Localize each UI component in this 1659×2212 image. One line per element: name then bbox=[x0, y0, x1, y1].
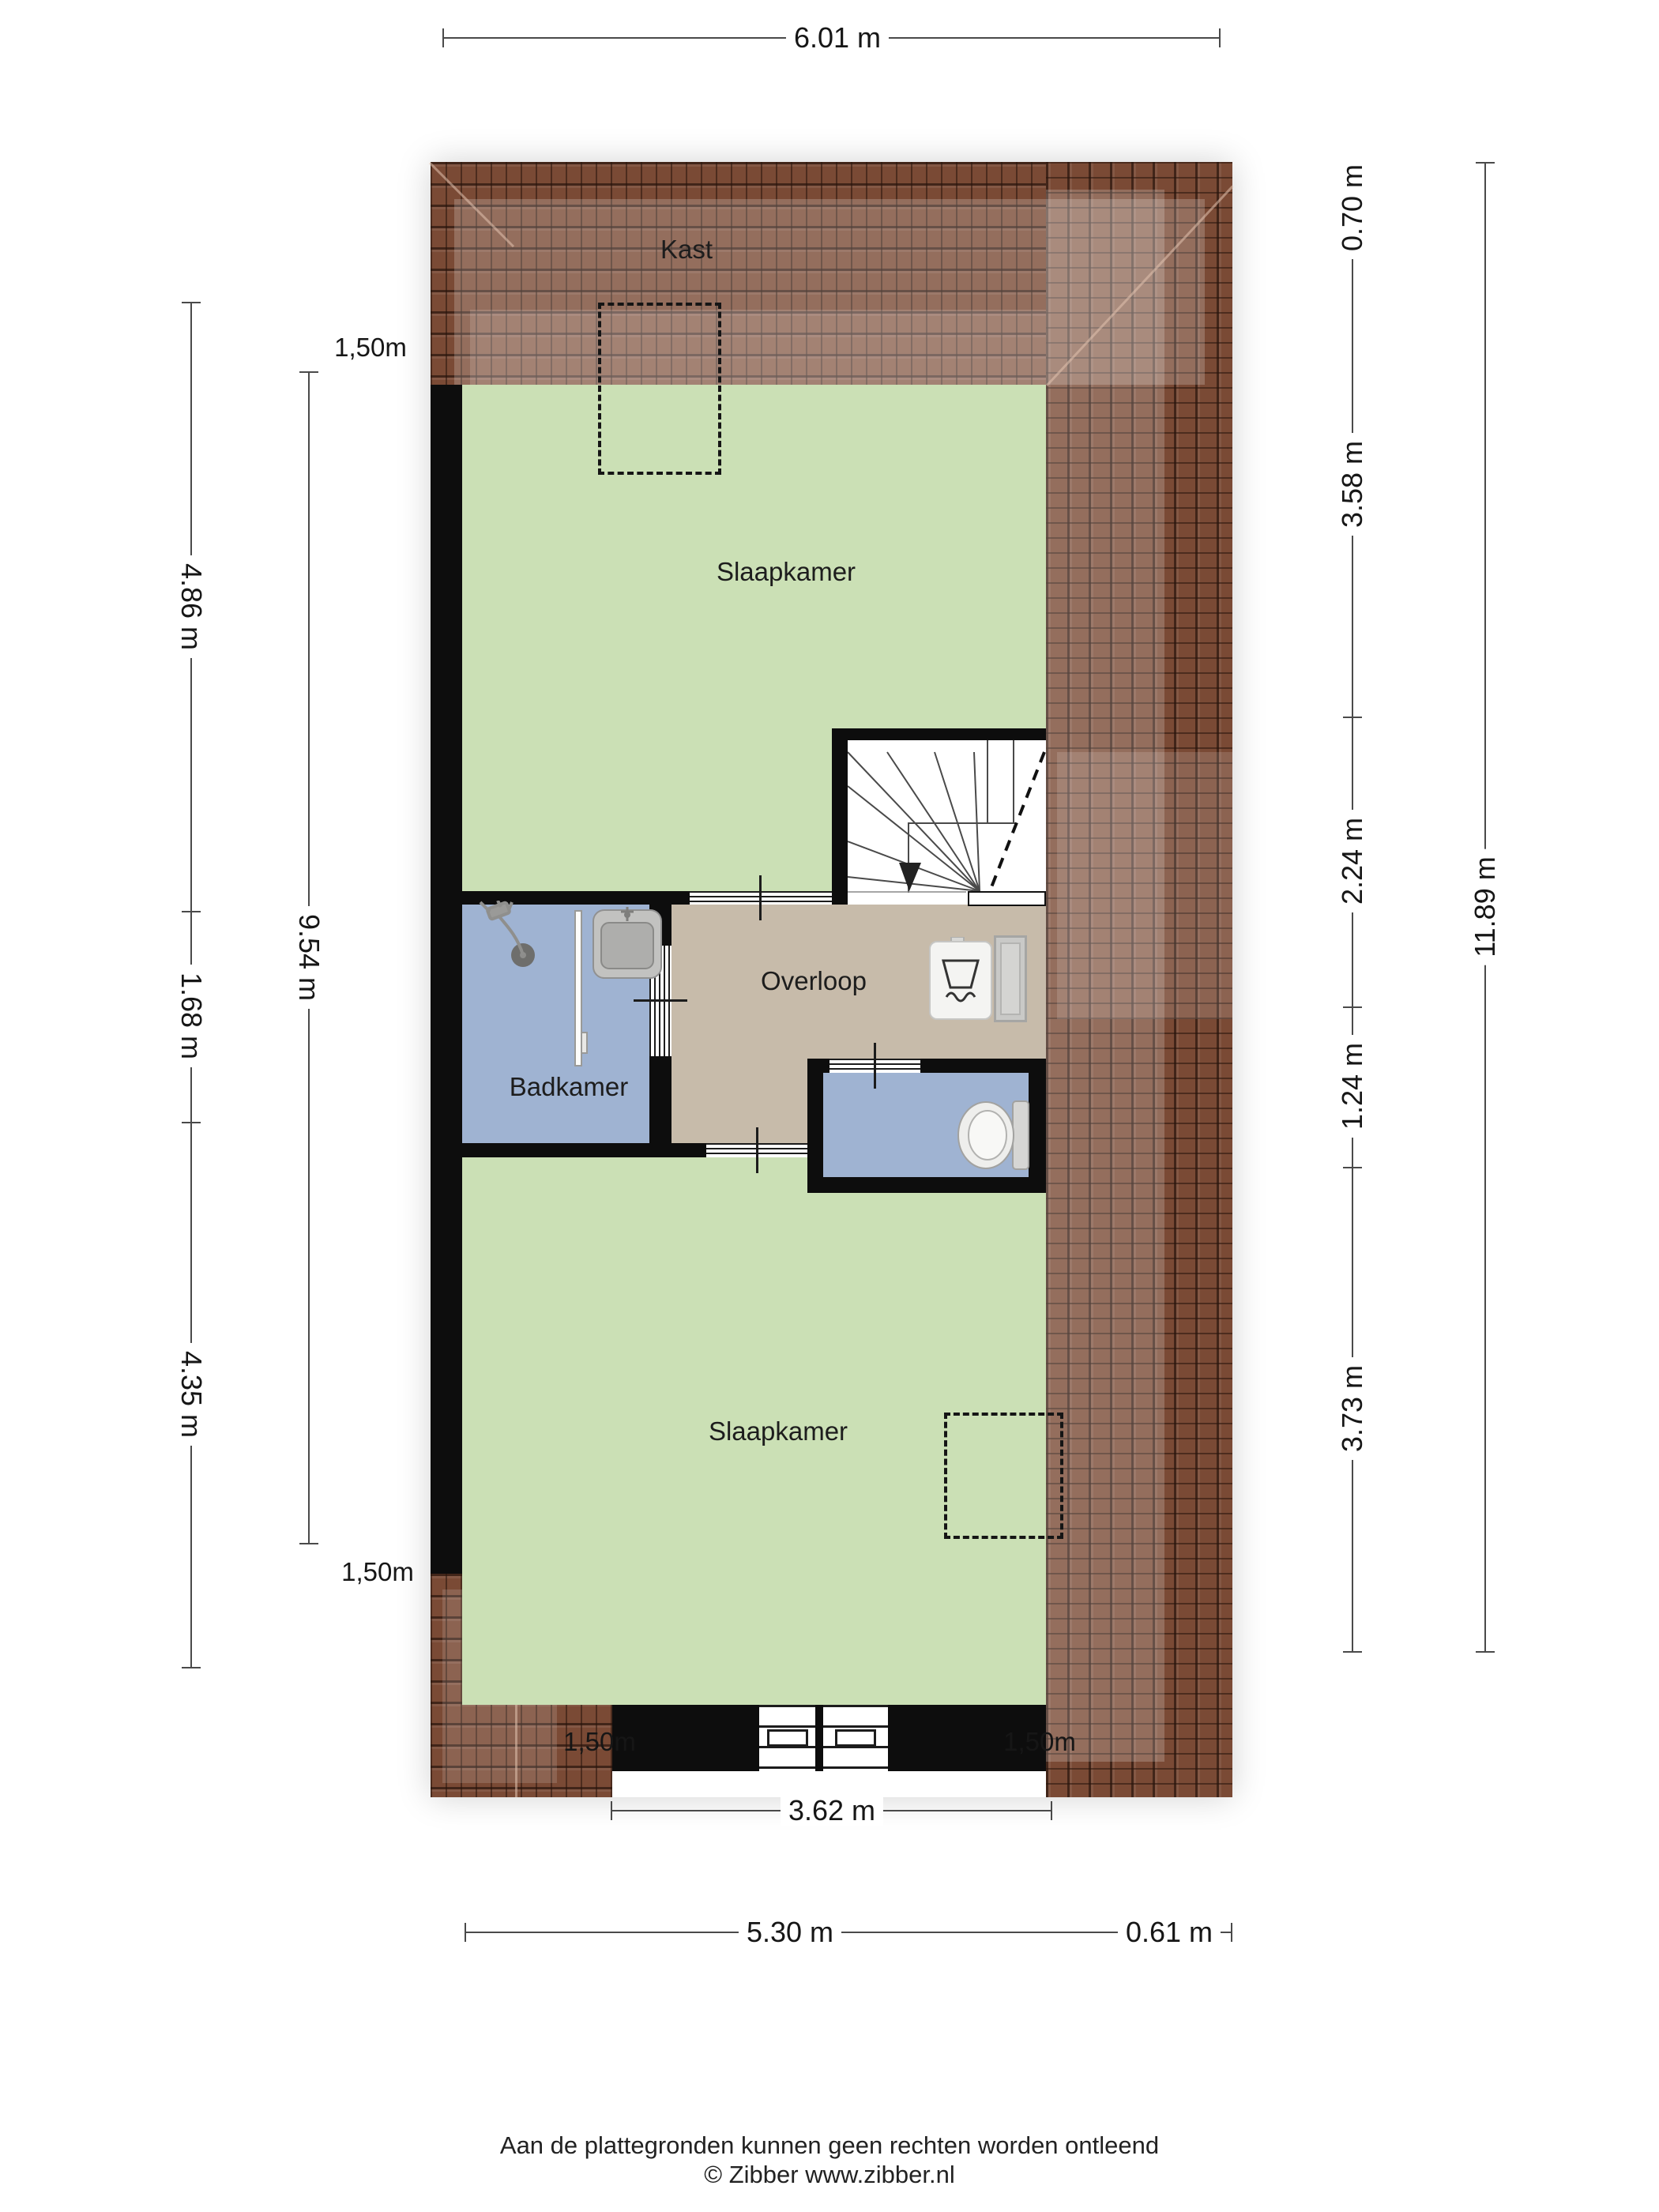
room-label-bathroom: Badkamer bbox=[510, 1072, 628, 1102]
dim-tick bbox=[442, 28, 444, 47]
wall-window-mullion bbox=[815, 1705, 823, 1771]
room-label-landing: Overloop bbox=[761, 966, 867, 996]
door-centerline bbox=[634, 999, 687, 1002]
dim-tick bbox=[182, 911, 201, 912]
dim-tick bbox=[1343, 1006, 1362, 1008]
dim-label-headroom-left-bottom: 1,50m bbox=[333, 1558, 422, 1586]
dim-label-headroom-left-top: 1,50m bbox=[326, 333, 415, 362]
room-label-bedroom-bottom: Slaapkamer bbox=[709, 1416, 848, 1446]
dim-tick bbox=[1476, 1651, 1495, 1653]
wall-toilet-bottom bbox=[807, 1177, 1046, 1193]
stair-landing-threshold bbox=[968, 891, 1046, 906]
sink-icon bbox=[592, 905, 664, 980]
dim-tick bbox=[1476, 162, 1495, 164]
dim-label-left-2: 4.35 m bbox=[175, 1343, 207, 1446]
dim-label-right-total: 11.89 m bbox=[1469, 848, 1501, 965]
dim-label-headroom-bottom-left: 1,50m bbox=[555, 1728, 644, 1756]
dim-tick bbox=[1051, 1801, 1052, 1820]
roof-overlay bbox=[470, 310, 1046, 385]
toilet-icon bbox=[953, 1100, 1032, 1174]
footer-disclaimer: Aan de plattegronden kunnen geen rechten… bbox=[500, 2131, 1159, 2160]
dim-tick bbox=[611, 1801, 612, 1820]
dim-label-headroom-bottom-right: 1,50m bbox=[995, 1728, 1084, 1756]
dim-label-right-3: 1.24 m bbox=[1337, 1035, 1368, 1138]
dim-label-left-1: 1.68 m bbox=[175, 965, 207, 1067]
stairwell bbox=[848, 740, 1046, 893]
room-label-bedroom-top: Slaapkamer bbox=[717, 557, 856, 587]
radiator-knob bbox=[581, 1032, 588, 1054]
dim-label-right-0: 0.70 m bbox=[1337, 156, 1368, 259]
dim-label-right-4: 3.73 m bbox=[1337, 1357, 1368, 1460]
wall-toilet-left bbox=[807, 1059, 823, 1193]
floorplan-canvas: Kast Slaapkamer Overloop Badkamer Slaapk… bbox=[0, 0, 1659, 2212]
wall-toilet-top bbox=[920, 1059, 1046, 1073]
dim-tick bbox=[1231, 1923, 1232, 1942]
footer-credit: © Zibber www.zibber.nl bbox=[704, 2161, 954, 2189]
landing-floor bbox=[671, 905, 807, 1143]
window-pane bbox=[835, 1729, 876, 1747]
dim-label-top-width: 6.01 m bbox=[786, 22, 889, 54]
door-centerline bbox=[756, 1127, 758, 1173]
wall-bathroom-right-lower bbox=[649, 1056, 671, 1157]
wall-stairwell-top bbox=[832, 728, 1046, 740]
dim-tick bbox=[299, 1543, 318, 1544]
dim-tick bbox=[182, 1667, 201, 1668]
window-pane bbox=[767, 1729, 808, 1747]
dim-tick bbox=[1343, 717, 1362, 718]
dim-tick bbox=[1343, 1167, 1362, 1168]
washing-machine-icon bbox=[929, 937, 992, 1021]
door-centerline bbox=[759, 875, 762, 920]
wall-toilet-top-stub bbox=[823, 1059, 829, 1073]
dim-tick bbox=[465, 1923, 466, 1942]
dim-label-right-1: 3.58 m bbox=[1337, 433, 1368, 536]
boiler-cabinet bbox=[994, 935, 1027, 1022]
dim-label-bottom-inner-width: 3.62 m bbox=[781, 1795, 883, 1826]
dim-label-bottom-overhang: 0.61 m bbox=[1118, 1917, 1221, 1948]
wall-stub bbox=[832, 891, 848, 905]
dormer-dashed-outline bbox=[944, 1413, 1063, 1539]
window-bottom-right bbox=[823, 1705, 888, 1771]
dim-tick bbox=[299, 371, 318, 373]
door-centerline bbox=[874, 1043, 876, 1089]
dim-tick bbox=[1343, 1651, 1362, 1653]
window-bottom-left bbox=[759, 1705, 815, 1771]
dim-label-left-inner-total: 9.54 m bbox=[293, 906, 325, 1009]
dim-tick bbox=[182, 302, 201, 303]
dim-label-left-0: 4.86 m bbox=[175, 555, 207, 658]
dim-tick bbox=[1219, 28, 1221, 47]
dim-tick bbox=[182, 1122, 201, 1123]
wall-left-exterior bbox=[431, 385, 462, 1574]
dim-label-bottom-width: 5.30 m bbox=[739, 1917, 841, 1948]
wall-bathroom-bottom bbox=[462, 1143, 706, 1157]
roof-overlay bbox=[1057, 752, 1232, 1019]
room-label-kast: Kast bbox=[660, 235, 713, 265]
dim-label-right-2: 2.24 m bbox=[1337, 810, 1368, 912]
kast-dashed-outline bbox=[598, 303, 721, 475]
stairs-icon bbox=[848, 740, 1046, 893]
wall-stairwell-left bbox=[832, 728, 848, 893]
shower-icon bbox=[474, 901, 561, 976]
